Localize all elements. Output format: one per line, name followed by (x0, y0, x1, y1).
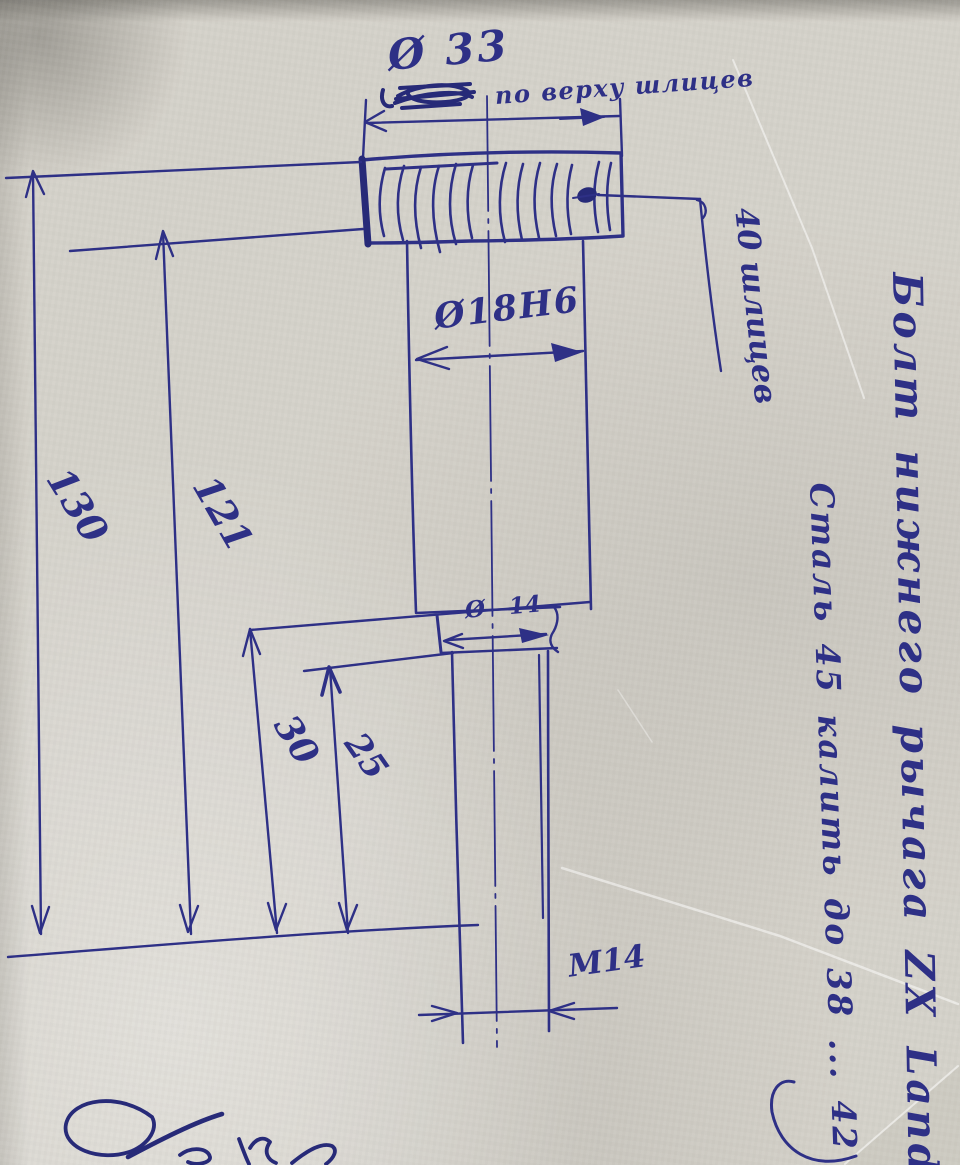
spline-head (362, 152, 623, 252)
dim-121 (70, 229, 363, 934)
dim-m14 (419, 1003, 617, 1021)
leader-spline-count (598, 195, 721, 371)
crossed-out-scribble (382, 84, 474, 108)
signature-scribble (66, 1101, 335, 1164)
dim-baseline (8, 925, 478, 957)
dim-130 (6, 162, 361, 934)
dim-25 (322, 667, 357, 933)
centerline (487, 96, 497, 1047)
paper-sketch-photo: Ø 33 по верху шлицев 40 шлицев Ø18H6 130… (0, 0, 960, 1165)
dim-dia18 (416, 343, 583, 369)
dim-30 (243, 629, 286, 933)
threaded-shaft (452, 651, 549, 1043)
